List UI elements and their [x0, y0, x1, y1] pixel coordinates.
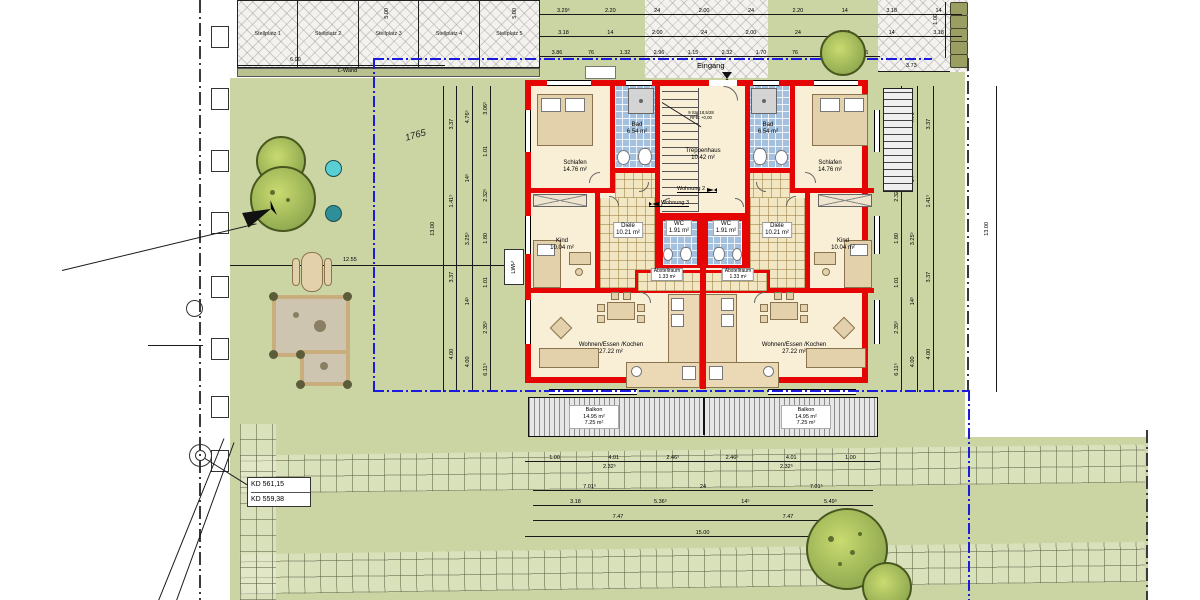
wall [805, 193, 810, 293]
boundary-line-right [967, 58, 969, 392]
room-label-schlafen-left: Schlafen14.76 m² [563, 160, 587, 174]
dining-chair [774, 292, 782, 300]
room-label-abstellraum-right: Abstellraum1.33 m² [722, 268, 754, 281]
sandbox-post [269, 292, 278, 301]
wall [595, 193, 600, 293]
wc-washbasin [732, 248, 742, 261]
balcony-divider [703, 398, 705, 435]
garden-width-dim: 12.55 [343, 257, 357, 263]
window [874, 110, 880, 152]
dim-chain-bottom-3: 3.185.36⁵14⁵5.49⁵ [533, 499, 873, 506]
paved-dim-line [878, 71, 950, 72]
sandbox-post [296, 380, 305, 389]
dim-total-left: 13.00 [430, 222, 436, 236]
wall [750, 168, 795, 173]
paving-band-left [240, 424, 276, 600]
heat-pump-box: LWP [504, 249, 524, 285]
washbasin [775, 150, 788, 165]
dim-chain-right-outer: 3.371.41⁵3.374.00 [925, 86, 934, 392]
hall-floor-upper [615, 173, 655, 198]
dining-table [770, 302, 798, 320]
l-wall-dim-line [237, 65, 445, 66]
sandbox-upper [272, 295, 350, 357]
stall-depth-dim: 5.00 [384, 8, 390, 19]
entrance-label: Eingang [697, 61, 725, 70]
dining-chair [786, 292, 794, 300]
party-wall [700, 213, 706, 389]
washbasin [617, 150, 630, 165]
balcony: Balkon14.95 m²7.25 m² Balkon14.95 m²7.25… [528, 397, 878, 437]
utility-line-bottom [373, 390, 970, 392]
arrow-left-icon [649, 202, 659, 206]
kitchen-appliance [721, 298, 734, 311]
kitchen-sink [631, 366, 642, 377]
wall [790, 86, 795, 193]
wardrobe [533, 194, 587, 207]
room-label-schlafen-right: Schlafen14.76 m² [818, 160, 842, 174]
dim-bottom-sub-left: 2.32⁵ [603, 464, 616, 470]
window [547, 80, 591, 86]
room-label-diele-right: Diele10.21 m² [762, 222, 792, 238]
dim-line [443, 86, 444, 392]
survey-point-circle-inner [195, 450, 206, 461]
kitchen-stove [682, 366, 696, 380]
boundary-line-far-right [1146, 430, 1148, 600]
sandbox-post [343, 292, 352, 301]
gate-structure [585, 66, 616, 79]
dim-chain-bottom-1: 1.004.012.46⁵2.46⁵4.011.00 [525, 455, 880, 462]
dining-chair [597, 304, 605, 312]
wc-toilet [713, 247, 725, 261]
waste-bin [950, 54, 968, 68]
tree [820, 30, 866, 76]
dim-chain-top-2: 3.18142.00242.00242.00143.18 [540, 30, 962, 37]
window [525, 110, 531, 152]
site-plan-canvas: Stellplatz 1Stellplatz 2Stellplatz 3Stel… [0, 0, 1200, 600]
dining-table [607, 302, 635, 320]
wc-washbasin [663, 248, 673, 261]
sandbox-post [296, 350, 305, 359]
dim-chain-left-outer: 3.371.41⁵3.374.00 [448, 86, 457, 392]
picnic-bench [324, 258, 332, 286]
sandbox-post [343, 380, 352, 389]
waste-bin [950, 41, 968, 55]
boundary-marker [211, 276, 229, 298]
room-label-bad-left: Bad6.54 m² [627, 122, 647, 136]
kitchen-sink [763, 366, 774, 377]
dim-line [996, 86, 997, 392]
balcony-label-right: Balkon14.95 m²7.25 m² [781, 405, 831, 429]
stairwell-note-line2: RFB: +0,00 [665, 115, 737, 120]
boundary-marker [211, 338, 229, 360]
kd-mark-2: KD 559,38 [251, 493, 310, 507]
garden-dim-line [230, 265, 522, 266]
dining-chair [623, 292, 631, 300]
bin-row-dim: 1.00 [933, 14, 939, 25]
leader-line-short [148, 345, 203, 346]
room-label-kind-left: Kind10.04 m² [550, 238, 574, 252]
dim-total-right: 13.00 [984, 222, 990, 236]
pillow [541, 98, 561, 112]
room-label-kind-right: Kind10.04 m² [831, 238, 855, 252]
utility-line-vertical-left [373, 58, 375, 392]
kitchen-stove [709, 366, 723, 380]
bush [325, 205, 342, 222]
sandbox-stone [314, 320, 326, 332]
window [753, 80, 779, 86]
dining-chair [597, 315, 605, 323]
wall [610, 168, 655, 173]
window [814, 80, 858, 86]
kitchen-appliance [721, 314, 734, 327]
bush [325, 160, 342, 177]
boundary-marker [211, 150, 229, 172]
kd-mark-1: KD 561,15 [251, 478, 310, 493]
desk-chair [575, 268, 583, 276]
dining-chair [637, 304, 645, 312]
waste-bin [950, 15, 968, 29]
room-label-bad-right: Bad6.54 m² [758, 122, 778, 136]
window [525, 300, 531, 344]
sandbox-post [269, 350, 278, 359]
desk [569, 252, 591, 265]
building-outline: 9 Stg 18,5/28 RFB: +0,00 Wohnung 2 Wohnu… [525, 80, 868, 383]
stairwell-note: 9 Stg 18,5/28 RFB: +0,00 [665, 110, 737, 120]
arrow-right-icon [707, 188, 717, 192]
stall-depth-dim: 5.00 [512, 8, 518, 19]
exterior-stair [883, 88, 913, 192]
wardrobe [818, 194, 872, 207]
room-label-wohnen-right: Wohnen/Essen /Kochen27.22 m² [762, 342, 826, 356]
survey-point-circle [186, 300, 203, 317]
boundary-marker [211, 26, 229, 48]
window [874, 300, 880, 344]
toilet [753, 148, 767, 165]
kitchen-appliance [671, 298, 684, 311]
kd-elevation-box: KD 561,15 KD 559,38 [247, 477, 311, 507]
pillow [565, 98, 585, 112]
wc-toilet [680, 247, 692, 261]
pillow [844, 98, 864, 112]
toilet [638, 148, 652, 165]
boundary-marker [211, 88, 229, 110]
picnic-bench [292, 258, 300, 286]
sandbox-stone [320, 362, 328, 370]
room-label-abstellraum-left: Abstellraum1.33 m² [651, 268, 683, 281]
dim-bottom-sub-right: 2.32⁵ [780, 464, 793, 470]
armchair [550, 317, 573, 340]
dining-chair [611, 292, 619, 300]
wall [610, 86, 615, 193]
dim-chain-left-mid: 4.76⁵14⁵3.25⁵14⁵4.00 [464, 86, 473, 392]
room-label-treppenhaus: Treppenhaus10.42 m² [685, 148, 720, 162]
l-wall-label: L-Wand [338, 68, 357, 74]
boundary-marker [211, 396, 229, 418]
apartment-2-arrow: Wohnung 2 [677, 186, 717, 193]
dim-chain-left-inner: 3.06⁵1.012.32⁵1.801.012.35⁵6.11⁵ [482, 86, 491, 392]
kitchen-appliance [671, 314, 684, 327]
paved-width-dim: 3.73 [906, 63, 917, 69]
armchair [833, 317, 856, 340]
window [626, 80, 652, 86]
desk-chair [822, 268, 830, 276]
tree-leader-line [62, 223, 257, 271]
desk [814, 252, 836, 265]
wall [745, 86, 750, 268]
picnic-table [301, 252, 323, 292]
dining-chair [637, 315, 645, 323]
sandbox-stone [293, 312, 299, 318]
room-label-wohnen-left: Wohnen/Essen /Kochen27.22 m² [579, 342, 643, 356]
boundary-line-left [199, 0, 201, 600]
heat-pump-label: LWP [511, 261, 517, 274]
room-label-diele-left: Diele10.21 m² [613, 222, 643, 238]
balcony-label-left: Balkon14.95 m²7.25 m² [569, 405, 619, 429]
window [525, 216, 531, 254]
dining-chair [800, 315, 808, 323]
apartment-2-label: Wohnung 2 [677, 186, 705, 192]
l-wall-length-dim: 6.00 [290, 57, 301, 63]
l-wall-strip [237, 68, 540, 77]
dim-chain-bottom-2: 7.01⁵247.01⁵ [533, 484, 873, 491]
apartment-3-arrow: Wohnung 3 [649, 200, 689, 207]
room-label-wc-left: WC1.91 m² [666, 220, 692, 236]
shower-drain [639, 99, 643, 103]
dining-chair [760, 315, 768, 323]
dining-chair [800, 304, 808, 312]
window [874, 216, 880, 254]
shower-drain [762, 99, 766, 103]
utility-line-vertical-right [968, 390, 970, 600]
room-label-wc-right: WC1.91 m² [713, 220, 739, 236]
dining-chair [760, 304, 768, 312]
dim-chain-top-1: 3.29⁵2.20242.00242.20143.1814 [540, 8, 962, 15]
entrance-door-opening [709, 80, 737, 86]
pillow [820, 98, 840, 112]
apartment-3-label: Wohnung 3 [661, 200, 689, 206]
